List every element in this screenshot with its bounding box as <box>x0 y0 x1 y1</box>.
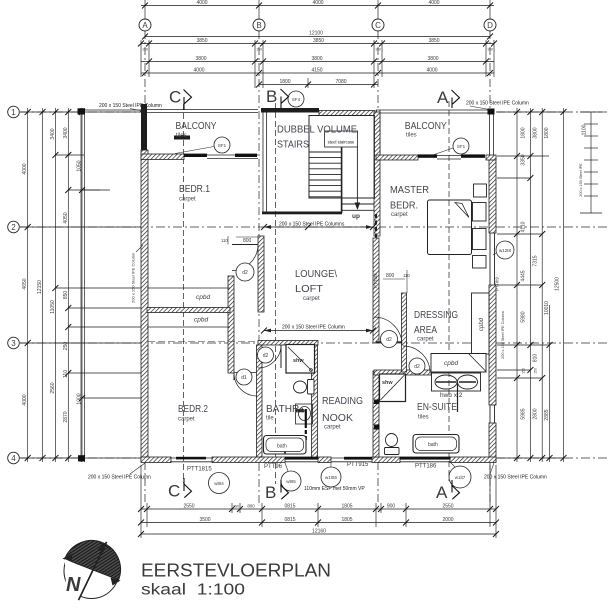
svg-text:12500: 12500 <box>555 277 561 291</box>
svg-text:tile: tile <box>266 416 274 422</box>
svg-text:4000: 4000 <box>426 68 437 74</box>
svg-text:3400: 3400 <box>50 128 56 139</box>
svg-text:4050: 4050 <box>63 212 69 223</box>
svg-text:3400: 3400 <box>63 127 69 138</box>
svg-text:250: 250 <box>63 342 69 351</box>
svg-text:200 x 150 Steel IPE Column: 200 x 150 Steel IPE Column <box>131 253 136 303</box>
svg-text:PTT186: PTT186 <box>415 464 437 470</box>
svg-text:150: 150 <box>142 48 148 52</box>
svg-text:carpet: carpet <box>324 425 341 431</box>
svg-text:4150: 4150 <box>311 68 322 74</box>
svg-text:shw: shw <box>293 358 304 364</box>
svg-text:7315: 7315 <box>533 255 539 266</box>
svg-text:2800: 2800 <box>533 408 539 419</box>
svg-text:1800: 1800 <box>544 127 550 138</box>
svg-text:PTT915: PTT915 <box>347 462 369 468</box>
svg-text:A: A <box>437 88 449 107</box>
svg-text:AREA: AREA <box>414 324 437 336</box>
svg-text:carpet: carpet <box>178 417 195 423</box>
svg-text:STAIRS: STAIRS <box>277 139 309 151</box>
svg-text:BEDR.2: BEDR.2 <box>178 403 208 415</box>
svg-text:tiles: tiles <box>406 133 417 139</box>
svg-text:LOUNGE\: LOUNGE\ <box>295 268 337 280</box>
svg-text:d2: d2 <box>263 353 269 359</box>
svg-text:B: B <box>256 21 261 30</box>
svg-text:BATHR.: BATHR. <box>266 403 302 415</box>
svg-text:150: 150 <box>375 48 381 52</box>
svg-text:PTT1815: PTT1815 <box>187 467 212 473</box>
svg-text:EERSTEVLOERPLAN: EERSTEVLOERPLAN <box>141 561 331 581</box>
svg-text:d2: d2 <box>386 337 392 343</box>
svg-text:4000: 4000 <box>312 0 323 6</box>
svg-text:4000: 4000 <box>196 0 207 6</box>
svg-text:1100: 1100 <box>582 124 588 135</box>
svg-text:cpbd: cpbd <box>444 360 458 367</box>
svg-text:2560: 2560 <box>50 382 56 393</box>
svg-text:150: 150 <box>487 48 493 52</box>
svg-text:1050: 1050 <box>77 160 83 171</box>
svg-text:0815: 0815 <box>284 504 295 510</box>
svg-text:2550: 2550 <box>183 504 194 510</box>
svg-text:5985: 5985 <box>521 408 527 419</box>
svg-text:C: C <box>375 21 381 30</box>
svg-text:3850: 3850 <box>196 38 207 44</box>
svg-text:NOOK: NOOK <box>322 412 353 424</box>
svg-text:12150: 12150 <box>37 280 43 294</box>
svg-text:4000: 4000 <box>22 394 28 405</box>
svg-text:w1lt7: w1lt7 <box>455 475 466 480</box>
svg-text:800: 800 <box>243 238 252 244</box>
svg-text:4000: 4000 <box>193 68 204 74</box>
svg-text:1800: 1800 <box>521 127 527 138</box>
svg-text:3: 3 <box>11 339 16 348</box>
svg-text:tiles: tiles <box>418 415 429 421</box>
svg-text:w9t5: w9t5 <box>286 479 296 484</box>
svg-text:carpet: carpet <box>303 296 320 302</box>
svg-text:11050: 11050 <box>50 300 56 314</box>
svg-text:12100: 12100 <box>309 31 323 37</box>
svg-text:3350: 3350 <box>521 154 527 165</box>
svg-text:800: 800 <box>247 504 255 509</box>
svg-text:LOFT: LOFT <box>295 283 324 295</box>
svg-text:7080: 7080 <box>335 79 346 85</box>
svg-text:d1: d1 <box>241 375 247 381</box>
svg-text:N: N <box>66 574 81 596</box>
svg-text:12160: 12160 <box>312 529 326 535</box>
svg-text:4445: 4445 <box>521 270 527 281</box>
svg-text:2885: 2885 <box>544 409 550 420</box>
svg-text:3850: 3850 <box>313 38 324 44</box>
svg-text:hwb x 2: hwb x 2 <box>440 392 463 399</box>
svg-text:BALCONY: BALCONY <box>405 120 447 132</box>
svg-text:3800: 3800 <box>533 127 539 138</box>
svg-text:200 x 150 Steel IPE: 200 x 150 Steel IPE <box>579 163 583 197</box>
svg-text:D: D <box>487 21 493 30</box>
svg-text:810: 810 <box>533 354 539 363</box>
svg-text:200 x 150 Steel IPE Column: 200 x 150 Steel IPE Column <box>501 311 505 359</box>
svg-text:1805: 1805 <box>341 504 352 510</box>
svg-text:1805: 1805 <box>341 517 352 523</box>
svg-text:PTT8t9: PTT8t9 <box>373 273 378 288</box>
svg-text:d2: d2 <box>414 364 420 370</box>
svg-text:PTT96: PTT96 <box>264 464 283 470</box>
svg-text:150: 150 <box>522 368 526 374</box>
svg-text:B: B <box>265 483 276 502</box>
svg-text:d2: d2 <box>242 270 248 276</box>
svg-text:cpbd: cpbd <box>479 317 485 331</box>
svg-text:tiles: tiles <box>176 133 187 139</box>
svg-text:BEDR.: BEDR. <box>390 200 418 212</box>
svg-text:carpet: carpet <box>391 212 408 218</box>
svg-text:3800: 3800 <box>311 56 322 62</box>
svg-text:3500: 3500 <box>199 517 210 523</box>
svg-text:1: 1 <box>11 108 16 117</box>
svg-text:200 x 150 Steel IPE Column: 200 x 150 Steel IPE Column <box>466 101 529 107</box>
svg-text:carpet: carpet <box>417 337 434 343</box>
svg-text:800: 800 <box>386 273 395 279</box>
svg-text:10010: 10010 <box>544 301 550 315</box>
svg-text:w8t4: w8t4 <box>214 481 224 486</box>
svg-text:B: B <box>266 87 277 106</box>
svg-text:MASTER: MASTER <box>390 184 429 196</box>
svg-text:1000: 1000 <box>77 393 83 404</box>
svg-text:4: 4 <box>11 454 16 463</box>
svg-text:A: A <box>436 483 448 502</box>
svg-text:850: 850 <box>63 291 69 300</box>
svg-text:3850: 3850 <box>428 38 439 44</box>
svg-text:C: C <box>169 88 181 107</box>
svg-text:2: 2 <box>11 223 16 232</box>
svg-text:steel staircase: steel staircase <box>328 140 355 145</box>
svg-text:skaal 1:100: skaal 1:100 <box>141 582 245 599</box>
svg-text:4110: 4110 <box>521 221 527 232</box>
svg-text:110: 110 <box>221 238 228 243</box>
svg-text:C: C <box>168 482 180 501</box>
svg-text:110: 110 <box>403 273 410 278</box>
svg-text:EN-SUITE: EN-SUITE <box>417 401 457 413</box>
svg-text:carpet: carpet <box>179 197 196 203</box>
svg-text:4000: 4000 <box>428 0 439 6</box>
svg-text:up: up <box>352 213 360 220</box>
svg-text:SF1: SF1 <box>457 144 466 149</box>
svg-text:bath: bath <box>277 444 287 450</box>
svg-text:0815: 0815 <box>284 517 295 523</box>
svg-text:200 x 150 Steel IPE Column: 200 x 150 Steel IPE Column <box>282 325 345 331</box>
svg-text:4650: 4650 <box>22 278 28 289</box>
svg-text:BEDR.1: BEDR.1 <box>179 183 210 195</box>
svg-text:A: A <box>142 21 148 30</box>
svg-text:cpbd: cpbd <box>196 294 210 301</box>
svg-text:150: 150 <box>233 505 239 509</box>
svg-text:4000: 4000 <box>22 163 28 174</box>
svg-text:200 x 150 Steel IPE Column: 200 x 150 Steel IPE Column <box>88 475 151 481</box>
svg-text:900: 900 <box>387 504 396 510</box>
svg-text:cpbd: cpbd <box>194 317 208 324</box>
svg-text:DRESSING: DRESSING <box>414 309 458 321</box>
svg-text:1800: 1800 <box>279 79 290 85</box>
svg-text:SF4: SF4 <box>292 97 301 102</box>
svg-text:2550: 2550 <box>442 504 453 510</box>
svg-text:110mm ESP met 50mm VP: 110mm ESP met 50mm VP <box>304 486 365 492</box>
svg-text:bath: bath <box>428 442 438 448</box>
svg-text:150: 150 <box>534 368 538 374</box>
svg-text:2870: 2870 <box>63 411 69 422</box>
svg-text:200 x 150 Steel IPE Columns: 200 x 150 Steel IPE Columns <box>279 222 345 228</box>
svg-text:200 x 150 Steel IPE Column: 200 x 150 Steel IPE Column <box>99 103 162 109</box>
svg-text:DUBBEL VOLUME: DUBBEL VOLUME <box>277 124 357 136</box>
svg-text:200 x 150 Steel IPE Column: 200 x 150 Steel IPE Column <box>484 475 547 481</box>
svg-text:SF1: SF1 <box>218 143 227 148</box>
svg-text:BALCONY: BALCONY <box>176 120 217 132</box>
svg-text:w12t8: w12t8 <box>499 248 512 253</box>
svg-text:3800: 3800 <box>427 56 438 62</box>
svg-text:3800: 3800 <box>195 56 206 62</box>
svg-text:w10t6: w10t6 <box>325 475 338 480</box>
svg-text:110: 110 <box>63 370 69 378</box>
svg-text:READING: READING <box>322 395 363 407</box>
svg-text:150: 150 <box>256 48 262 52</box>
svg-text:shw: shw <box>382 380 393 386</box>
svg-text:2000: 2000 <box>442 517 453 523</box>
svg-text:5980: 5980 <box>521 311 527 322</box>
